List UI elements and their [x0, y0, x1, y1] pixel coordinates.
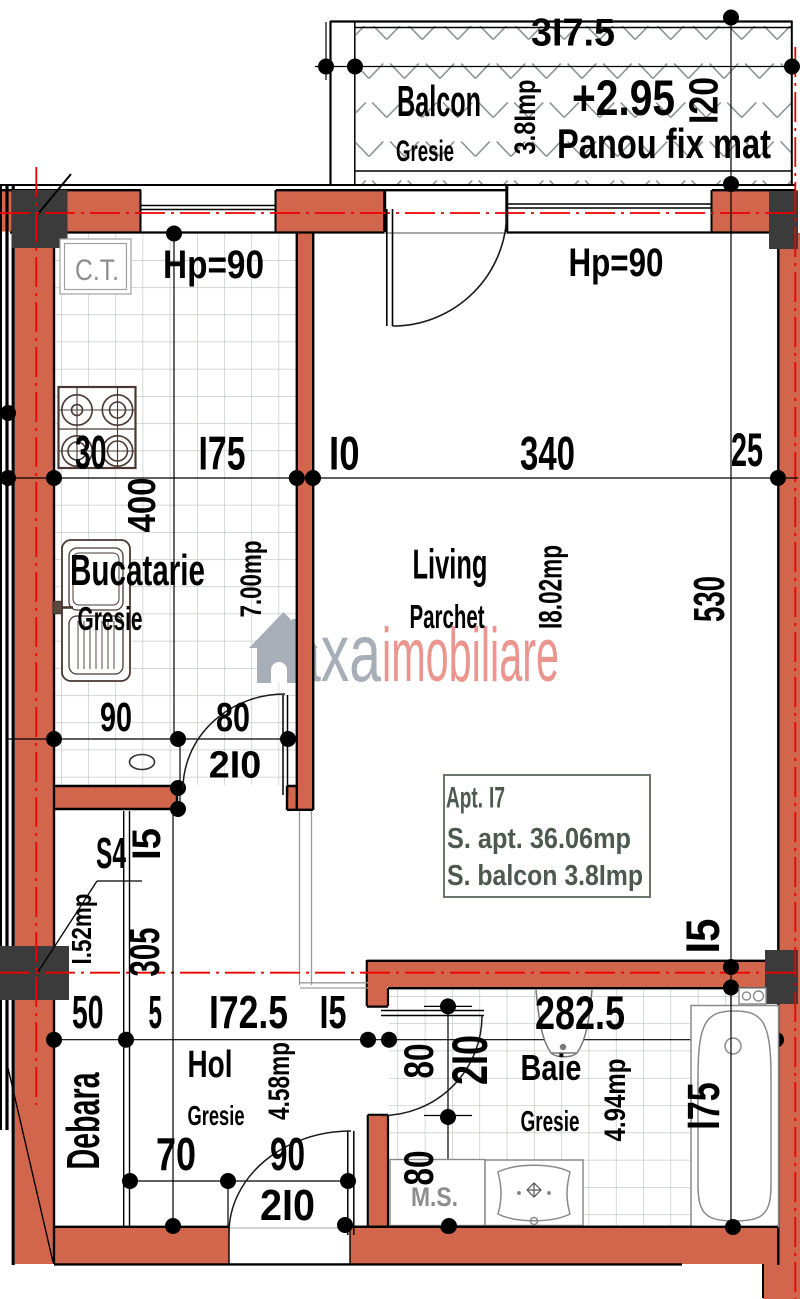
svg-text:S. balcon 3.8Imp: S. balcon 3.8Imp [447, 860, 643, 892]
svg-text:I5: I5 [676, 919, 729, 954]
svg-text:80: 80 [395, 1151, 442, 1186]
svg-text:I72.5: I72.5 [209, 986, 288, 1038]
svg-text:4.94mp: 4.94mp [599, 1059, 632, 1142]
svg-text:M.S.: M.S. [411, 1182, 458, 1212]
svg-text:305: 305 [121, 928, 169, 977]
svg-text:Hp=90: Hp=90 [569, 241, 664, 285]
svg-text:Hol: Hol [188, 1044, 233, 1086]
svg-text:I5: I5 [320, 986, 347, 1038]
svg-text:25: 25 [731, 423, 763, 476]
svg-text:4.58mp: 4.58mp [263, 1042, 296, 1120]
svg-text:I75: I75 [199, 427, 246, 480]
svg-text:Gresie: Gresie [78, 600, 143, 637]
svg-text:30: 30 [75, 426, 107, 479]
svg-text:Baie: Baie [521, 1047, 582, 1088]
svg-text:400: 400 [121, 478, 164, 533]
svg-text:3.8Imp: 3.8Imp [509, 80, 542, 155]
svg-text:C.T.: C.T. [75, 254, 119, 287]
svg-text:70: 70 [156, 1128, 196, 1180]
svg-text:340: 340 [520, 427, 575, 480]
svg-text:I5: I5 [125, 828, 169, 860]
svg-text:Bucatarie: Bucatarie [70, 546, 205, 595]
svg-text:S. apt. 36.06mp: S. apt. 36.06mp [447, 823, 631, 855]
svg-text:I7: I7 [489, 782, 505, 815]
svg-text:2I0: 2I0 [442, 1035, 498, 1085]
svg-text:2I0: 2I0 [209, 745, 262, 787]
svg-text:I75: I75 [678, 1082, 729, 1130]
svg-text:530: 530 [685, 576, 734, 622]
svg-text:90: 90 [270, 1128, 305, 1180]
svg-text:Debara: Debara [57, 1072, 109, 1169]
svg-text:I.52mp: I.52mp [66, 894, 97, 965]
svg-text:80: 80 [216, 694, 250, 740]
svg-text:Panou fix mat: Panou fix mat [557, 120, 771, 167]
svg-text:S4: S4 [96, 829, 126, 878]
svg-text:Gresie: Gresie [396, 135, 454, 168]
svg-text:50: 50 [72, 986, 104, 1038]
svg-text:5: 5 [148, 986, 162, 1038]
svg-text:7.00mp: 7.00mp [235, 541, 268, 618]
svg-text:Living: Living [413, 541, 488, 588]
svg-text:I0: I0 [329, 427, 360, 480]
svg-text:I20: I20 [681, 77, 727, 124]
svg-text:Balcon: Balcon [397, 77, 481, 126]
svg-text:282.5: 282.5 [535, 986, 625, 1039]
svg-text:Hp=90: Hp=90 [163, 243, 264, 287]
svg-text:3I7.5: 3I7.5 [531, 12, 615, 55]
svg-text:80: 80 [395, 1044, 442, 1079]
svg-text:I8.02mp: I8.02mp [533, 545, 569, 629]
svg-text:Apt.: Apt. [446, 782, 483, 815]
svg-text:2I0: 2I0 [260, 1181, 315, 1230]
svg-text:+2.95: +2.95 [572, 70, 675, 126]
svg-text:90: 90 [100, 694, 132, 740]
svg-text:Gresie: Gresie [521, 1106, 580, 1138]
svg-text:Parchet: Parchet [410, 598, 485, 635]
svg-text:Gresie: Gresie [188, 1100, 245, 1131]
